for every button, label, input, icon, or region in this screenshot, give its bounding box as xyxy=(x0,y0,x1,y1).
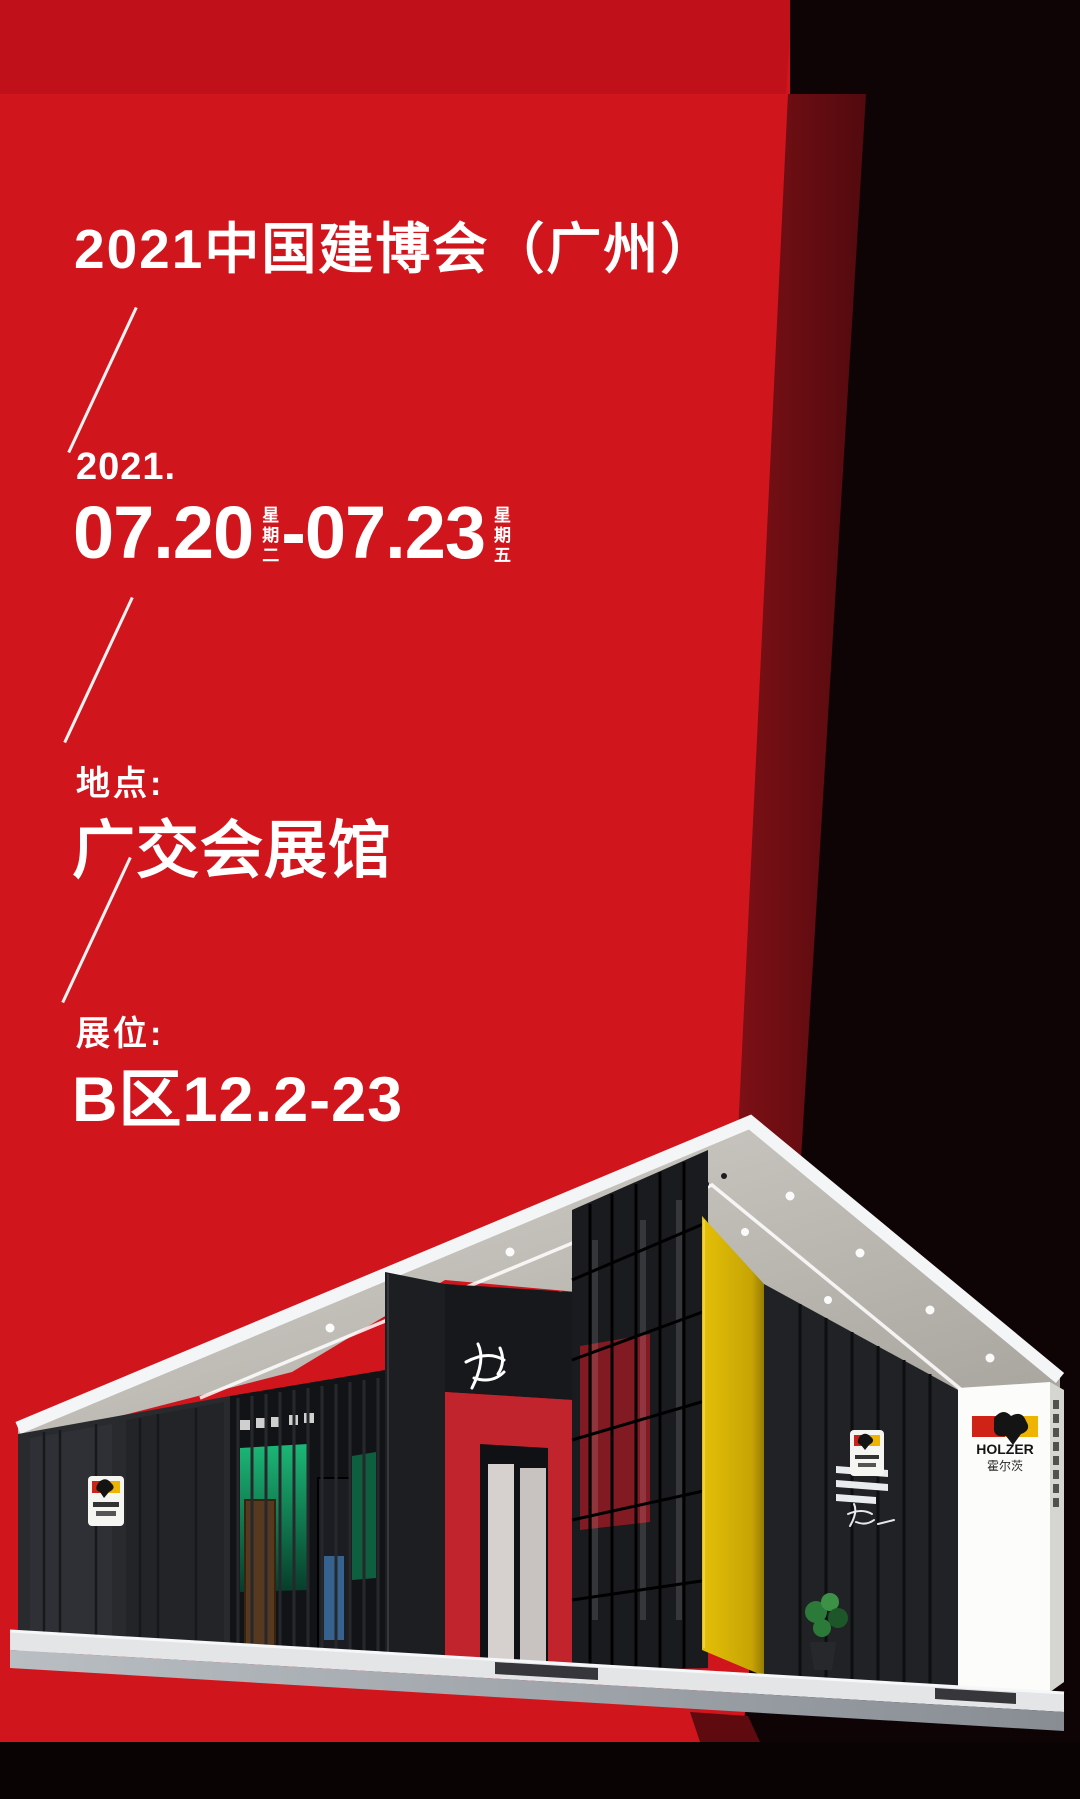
schedule-year: 2021. xyxy=(76,446,176,489)
poster: HOLZER 霍尔茨 2021中国建博会（广州） 2021. 07.20 星期二… xyxy=(0,0,1080,1799)
end-date: 07.23 xyxy=(305,494,485,572)
portal-pillar xyxy=(385,1272,445,1666)
booth-label: 展位: xyxy=(76,1006,164,1055)
booth-value: B区12.2-23 xyxy=(72,1049,403,1140)
date-separator: - xyxy=(281,494,305,572)
white-door xyxy=(488,1464,514,1660)
holzer-badge-icon xyxy=(850,1430,884,1476)
portal-header xyxy=(445,1284,572,1400)
door-glass xyxy=(324,1556,344,1640)
start-weekday: 星期二 xyxy=(260,506,277,572)
start-date: 07.20 xyxy=(73,494,253,572)
wood-door xyxy=(245,1500,275,1650)
red-top-band xyxy=(0,0,792,94)
venue-label: 地点: xyxy=(76,756,164,805)
end-weekday: 星期五 xyxy=(492,506,509,572)
holzer-badge-icon xyxy=(88,1476,124,1526)
poster-title: 2021中国建博会（广州） xyxy=(74,204,717,284)
bottom-black-band xyxy=(0,1742,1080,1799)
white-door xyxy=(520,1468,546,1662)
wall-panel xyxy=(30,1424,112,1640)
yellow-door xyxy=(702,1216,764,1676)
holzer-logo-text-en: HOLZER xyxy=(976,1441,1034,1457)
holzer-logo-text-cn: 霍尔茨 xyxy=(987,1458,1023,1473)
schedule-dates: 07.20 星期二 - 07.23 星期五 xyxy=(73,494,513,572)
